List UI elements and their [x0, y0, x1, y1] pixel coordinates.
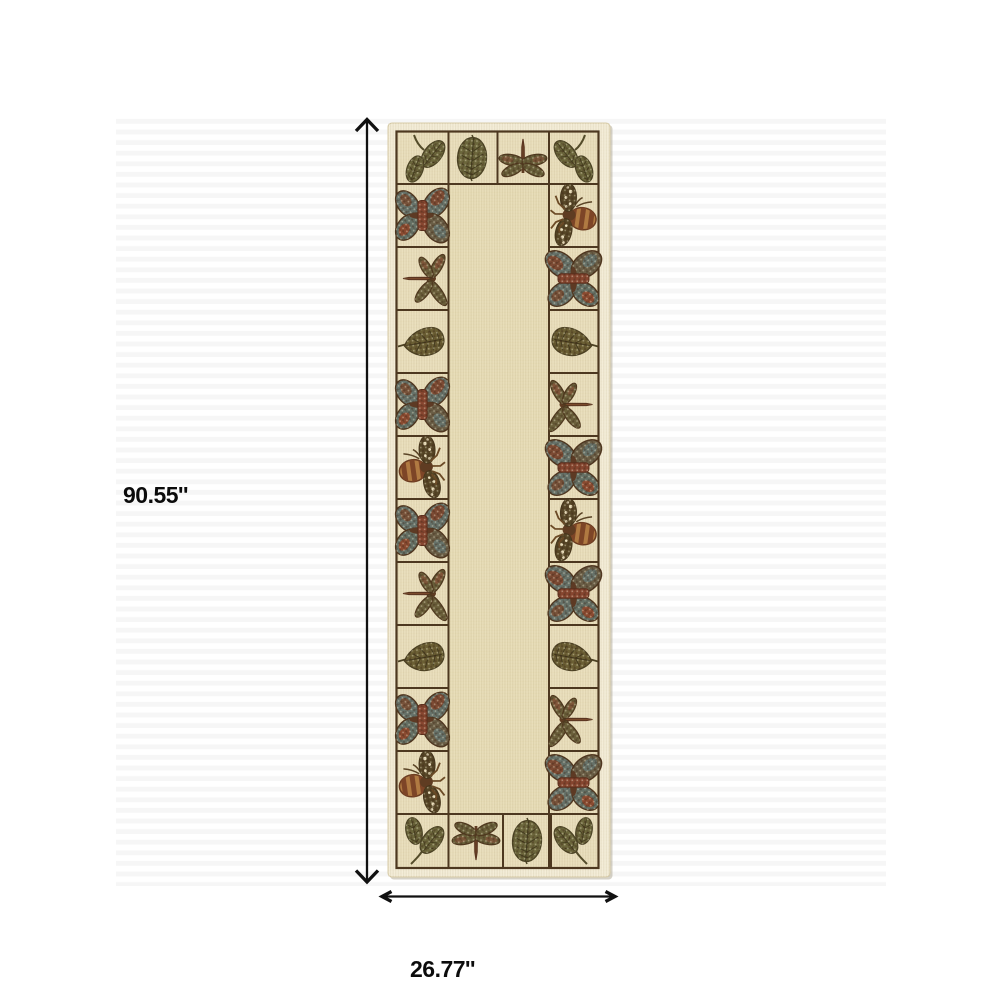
svg-text:90.55'': 90.55'' [123, 482, 188, 508]
svg-text:26.77'': 26.77'' [410, 956, 475, 982]
